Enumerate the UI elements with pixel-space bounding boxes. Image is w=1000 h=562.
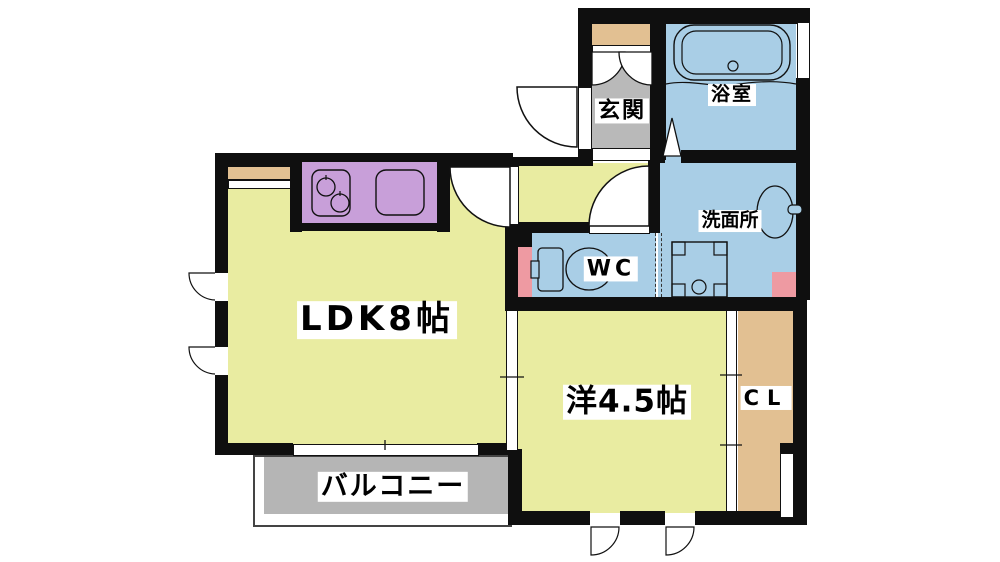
stove-icon — [312, 170, 350, 216]
bathtub-icon — [674, 25, 790, 80]
burner-icon — [331, 194, 349, 212]
room-label-balcony: バルコニー — [318, 472, 468, 502]
washer-pan-corner — [714, 242, 727, 255]
casement-window-swing — [666, 527, 694, 555]
casement-window-swing — [189, 273, 215, 300]
fixtures-layer — [0, 0, 1000, 562]
room-label-entrance: 玄関 — [595, 98, 649, 123]
shoe-cabinet-door-arc — [619, 52, 652, 85]
casement-window-swing — [189, 347, 215, 374]
washer-drain — [692, 280, 706, 294]
washbasin-icon — [757, 186, 793, 238]
bathtub-inner — [682, 31, 782, 74]
bathtub-drain — [728, 61, 738, 71]
room-label-ldk: LDK8帖 — [297, 301, 457, 339]
washer-pan-corner — [714, 284, 727, 297]
burner-icon — [317, 178, 335, 196]
washer-pan-icon — [672, 242, 727, 297]
casement-window-swing — [591, 527, 619, 555]
floorplan: LDK8帖 洋4.5帖 CL バルコニー 玄関 浴室 洗面所 WC — [0, 0, 1000, 562]
washer-pan-corner — [672, 284, 685, 297]
ldk-door-swing — [450, 167, 510, 227]
toilet-flush — [531, 261, 539, 278]
room-label-closet: CL — [741, 386, 792, 410]
entrance-door-swing — [517, 87, 577, 147]
toilet-tank-icon — [538, 248, 563, 291]
sink-icon — [376, 170, 424, 215]
bathroom-door-icon — [663, 118, 681, 156]
washbasin-tap — [788, 205, 802, 214]
wc-door-swing — [589, 166, 649, 226]
room-label-western: 洋4.5帖 — [563, 385, 691, 420]
room-label-washroom: 洗面所 — [698, 210, 761, 232]
washer-pan-corner — [672, 242, 685, 255]
room-label-toilet: WC — [584, 256, 638, 281]
room-label-bathroom: 浴室 — [708, 84, 756, 106]
